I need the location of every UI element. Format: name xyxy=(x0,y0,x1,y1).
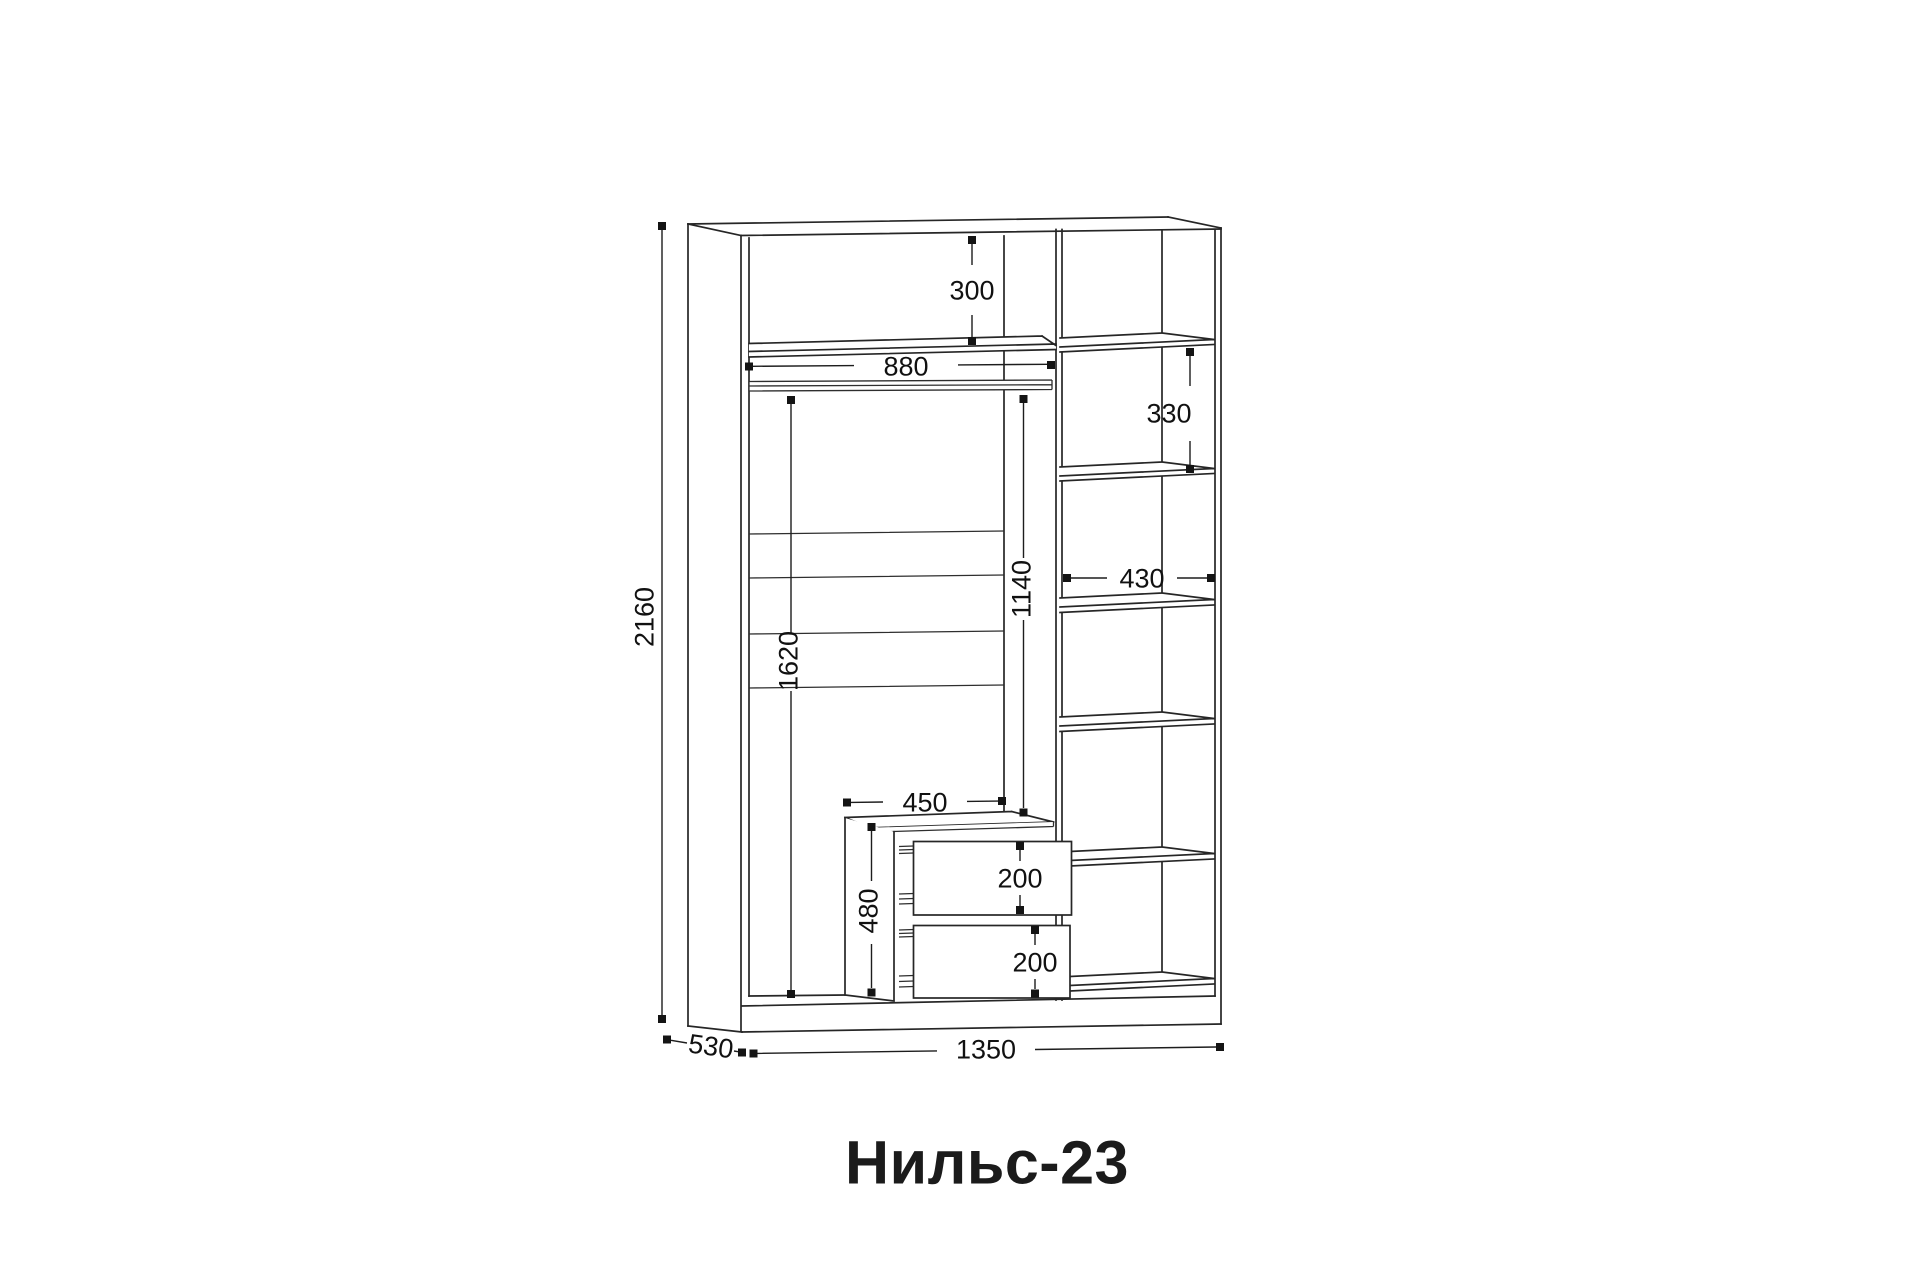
hanging-rod xyxy=(749,380,1052,391)
dimension-right-shelf-width: 430 xyxy=(1063,563,1215,593)
dimension-total-width: 1350 xyxy=(750,1034,1225,1064)
dimension-rod-to-drawer: 1140 xyxy=(1006,395,1036,817)
dim-label-top-shelf-offset: 300 xyxy=(949,275,994,305)
dim-label-total-depth: 530 xyxy=(687,1028,736,1064)
drawer-rails xyxy=(899,846,914,987)
dimension-total-depth: 530 xyxy=(663,1028,746,1064)
wardrobe-schematic: 2160 300 880 330 430 1140 1620 xyxy=(0,0,1920,1277)
right-shelf-3 xyxy=(1060,593,1214,613)
dim-label-total-width: 1350 xyxy=(956,1034,1016,1064)
furniture-drawing-page: 2160 300 880 330 430 1140 1620 xyxy=(0,0,1920,1277)
dim-label-rod-length: 880 xyxy=(883,351,928,381)
dim-label-hanging-zone: 1620 xyxy=(773,631,803,691)
dim-label-rod-to-drawer: 1140 xyxy=(1006,560,1036,618)
dim-label-drawer-bottom-height: 200 xyxy=(1012,947,1057,977)
right-shelf-4 xyxy=(1060,712,1214,732)
dim-label-drawer-top-height: 200 xyxy=(997,863,1042,893)
dim-label-right-shelf-gap: 330 xyxy=(1146,398,1191,428)
dimension-top-shelf-offset: 300 xyxy=(949,236,994,345)
dimension-right-shelf-gap: 330 xyxy=(1146,348,1194,473)
dim-label-right-shelf-width: 430 xyxy=(1119,563,1164,593)
drawer-front-top xyxy=(914,842,1072,916)
dimension-total-height: 2160 xyxy=(629,222,666,1023)
model-title: Нильс-23 xyxy=(845,1128,1129,1196)
dim-label-total-height: 2160 xyxy=(629,587,659,647)
right-shelf-5 xyxy=(1060,847,1214,867)
dimension-hanging-zone: 1620 xyxy=(773,396,803,998)
dim-label-drawer-unit-height: 480 xyxy=(853,888,883,933)
dim-label-drawer-width: 450 xyxy=(902,787,947,817)
